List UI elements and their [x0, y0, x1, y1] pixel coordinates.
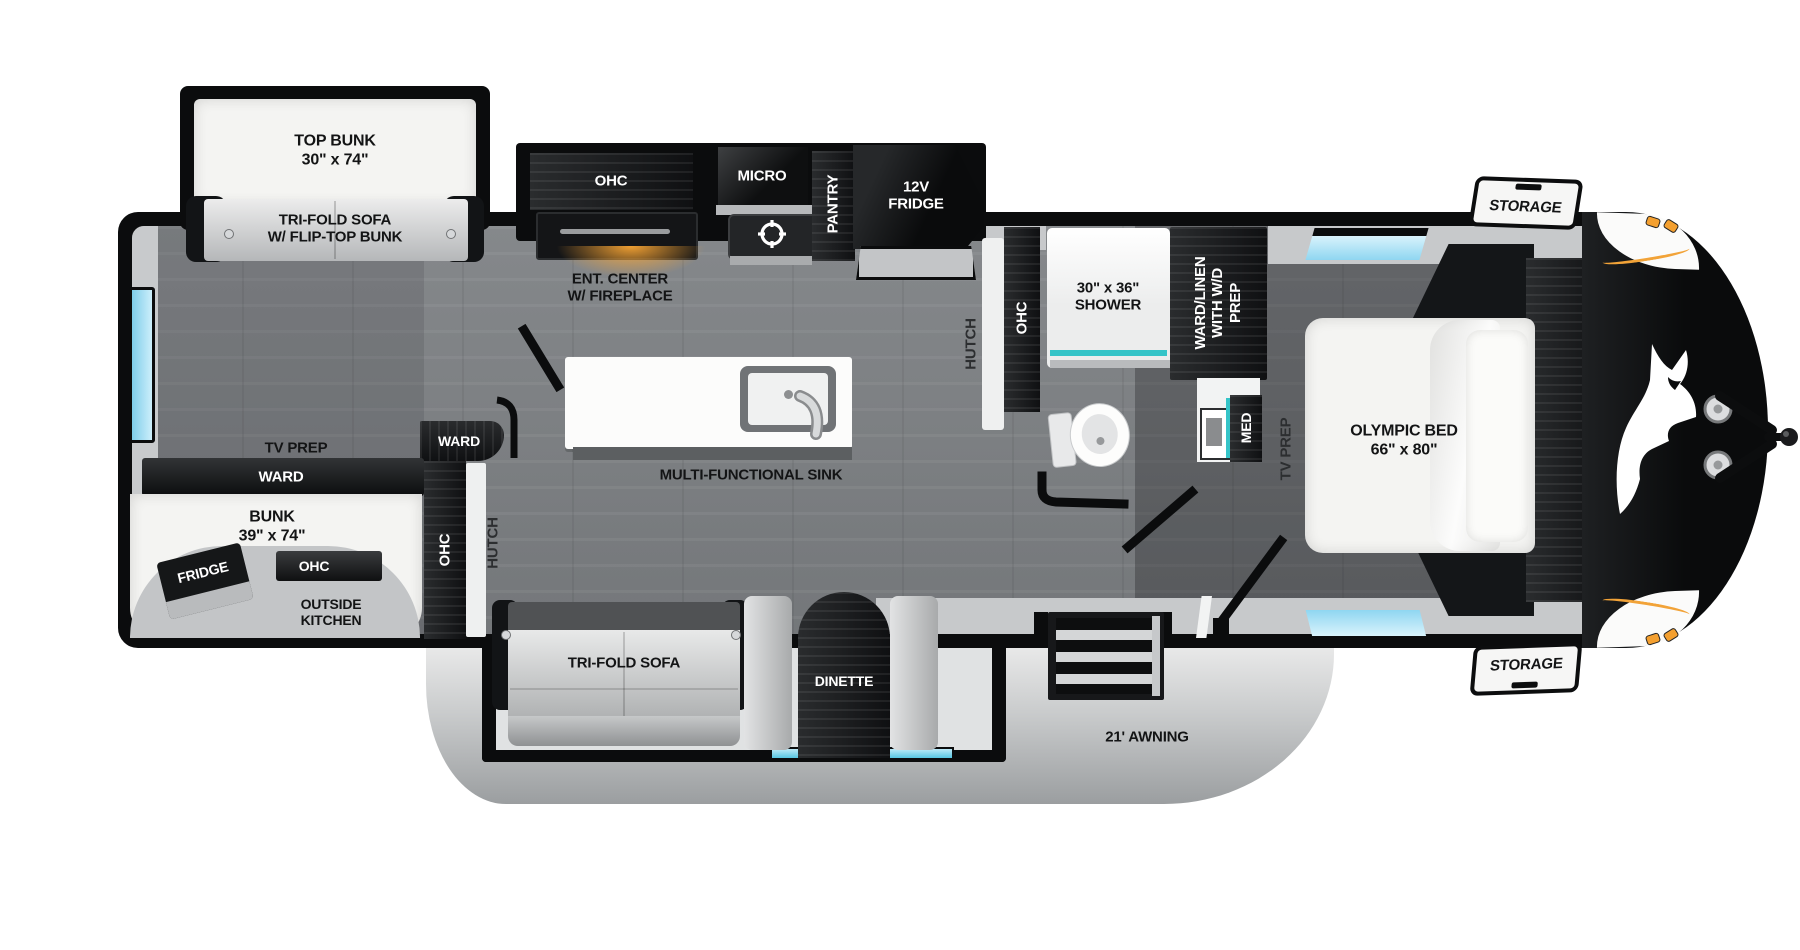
storage-tag-bottom: STORAGE	[1470, 642, 1583, 696]
storage-bottom-label: STORAGE	[1489, 655, 1563, 675]
bedroom-door-jamb	[1213, 618, 1229, 648]
door-swing-bedroom	[1221, 541, 1281, 622]
mid-ward-curve	[497, 400, 514, 458]
brand-logo-icon	[1606, 332, 1702, 528]
door-swing-bath-arc	[1042, 476, 1124, 504]
door-swing-galley	[524, 330, 558, 386]
door-swing-bath	[1128, 492, 1192, 547]
door-swing-overlay	[0, 0, 1800, 950]
rv-floorplan: 21' AWNING TOP BUNK 30" x 74" TRI-FOLD S…	[0, 0, 1800, 950]
storage-tag-bottom-notch	[1511, 682, 1538, 689]
hitch-icon	[1690, 380, 1800, 494]
storage-top-label: STORAGE	[1488, 197, 1563, 217]
storage-tag-top: STORAGE	[1468, 176, 1583, 230]
storage-tag-top-notch	[1515, 184, 1542, 191]
